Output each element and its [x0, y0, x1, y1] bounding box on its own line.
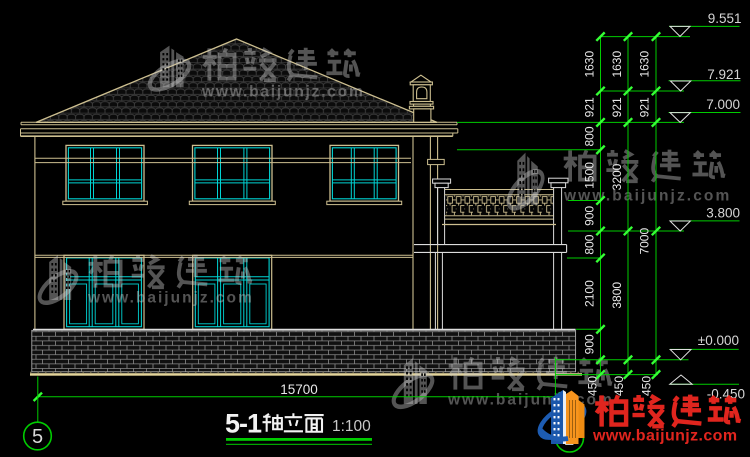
svg-text:1630: 1630	[638, 51, 652, 78]
svg-text:921: 921	[610, 97, 624, 117]
svg-text:7000: 7000	[638, 228, 652, 255]
svg-text:7.000: 7.000	[706, 97, 740, 112]
svg-text:15700: 15700	[280, 382, 318, 397]
svg-text:450: 450	[586, 376, 600, 396]
svg-text:www.baijunjz.com: www.baijunjz.com	[563, 188, 731, 205]
svg-text:921: 921	[583, 97, 597, 117]
svg-text:5-1: 5-1	[225, 409, 262, 439]
svg-text:450: 450	[640, 376, 654, 396]
svg-text:www.baijunjz.com: www.baijunjz.com	[201, 84, 365, 101]
svg-text:1630: 1630	[583, 51, 597, 78]
svg-text:921: 921	[638, 97, 652, 117]
svg-text:900: 900	[583, 206, 597, 226]
svg-text:7.921: 7.921	[707, 67, 741, 82]
svg-text:5: 5	[32, 426, 43, 448]
svg-text:800: 800	[583, 234, 597, 254]
svg-text:3800: 3800	[610, 282, 624, 309]
svg-text:www.baijunjz.com: www.baijunjz.com	[87, 290, 254, 307]
svg-text:900: 900	[583, 334, 597, 354]
svg-text:800: 800	[583, 126, 597, 146]
svg-text:9.551: 9.551	[708, 11, 742, 26]
svg-text:2100: 2100	[583, 280, 597, 307]
svg-text:3200: 3200	[610, 163, 624, 190]
svg-text:www.baijunjz.com: www.baijunjz.com	[592, 428, 738, 445]
svg-text:1630: 1630	[610, 51, 624, 78]
svg-text:1:100: 1:100	[332, 418, 371, 435]
svg-text:3.800: 3.800	[706, 205, 740, 220]
svg-text:±0.000: ±0.000	[698, 333, 739, 348]
svg-text:450: 450	[612, 376, 626, 396]
svg-text:1500: 1500	[583, 162, 597, 189]
